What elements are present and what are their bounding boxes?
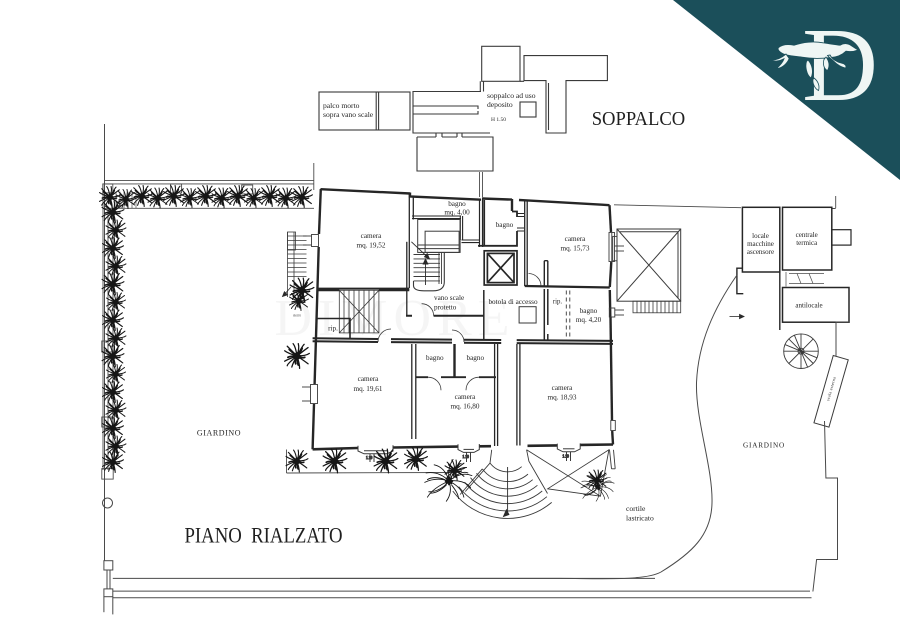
svg-text:locale: locale xyxy=(752,232,769,240)
svg-text:bagno: bagno xyxy=(426,354,444,362)
svg-text:bagno: bagno xyxy=(448,200,466,208)
svg-text:rip.: rip. xyxy=(553,299,563,306)
svg-text:protetto: protetto xyxy=(434,304,457,312)
svg-text:ascensore: ascensore xyxy=(747,248,774,256)
svg-text:mq. 18,93: mq. 18,93 xyxy=(548,394,577,402)
svg-text:lastricato: lastricato xyxy=(626,514,654,523)
svg-text:deposito: deposito xyxy=(487,100,513,109)
svg-text:rip.: rip. xyxy=(328,325,338,333)
svg-text:termica: termica xyxy=(796,239,818,247)
svg-text:camera: camera xyxy=(565,235,587,243)
svg-text:centrale: centrale xyxy=(796,231,818,239)
svg-text:sterro: sterro xyxy=(293,314,301,318)
svg-text:mq. 4,20: mq. 4,20 xyxy=(576,316,602,324)
svg-text:macchine: macchine xyxy=(747,240,774,248)
svg-text:palco morto: palco morto xyxy=(323,101,360,110)
svg-text:mq. 16,80: mq. 16,80 xyxy=(451,403,480,411)
svg-text:cortile: cortile xyxy=(626,504,646,513)
svg-text:GIARDINO: GIARDINO xyxy=(743,442,785,450)
svg-text:GIARDINO: GIARDINO xyxy=(197,429,241,438)
svg-text:sopra vano scale: sopra vano scale xyxy=(323,110,374,119)
svg-text:bagno: bagno xyxy=(496,221,514,229)
svg-text:vano scale: vano scale xyxy=(434,294,464,302)
svg-text:1.10: 1.10 xyxy=(463,455,469,459)
svg-text:mq. 4,00: mq. 4,00 xyxy=(444,209,470,217)
svg-text:bagno: bagno xyxy=(580,307,598,315)
svg-text:bagno: bagno xyxy=(467,354,485,362)
svg-text:PIANO RIALZATO: PIANO RIALZATO xyxy=(185,523,343,548)
svg-text:mq. 15,73: mq. 15,73 xyxy=(561,245,590,253)
svg-text:H 1.50: H 1.50 xyxy=(491,117,506,123)
svg-text:mq. 19,52: mq. 19,52 xyxy=(357,242,386,250)
svg-text:botola di accesso: botola di accesso xyxy=(488,298,538,306)
svg-text:mq. 19,61: mq. 19,61 xyxy=(354,385,383,393)
svg-text:camera: camera xyxy=(455,393,477,401)
svg-text:camera: camera xyxy=(358,375,380,383)
svg-text:camera: camera xyxy=(361,232,383,240)
svg-text:camera: camera xyxy=(552,384,574,392)
svg-text:SOPPALCO: SOPPALCO xyxy=(592,108,686,130)
svg-text:soppalco ad uso: soppalco ad uso xyxy=(487,91,536,100)
svg-text:1.10: 1.10 xyxy=(366,456,372,460)
svg-text:1.10: 1.10 xyxy=(563,455,569,459)
svg-text:antilocale: antilocale xyxy=(795,302,822,310)
